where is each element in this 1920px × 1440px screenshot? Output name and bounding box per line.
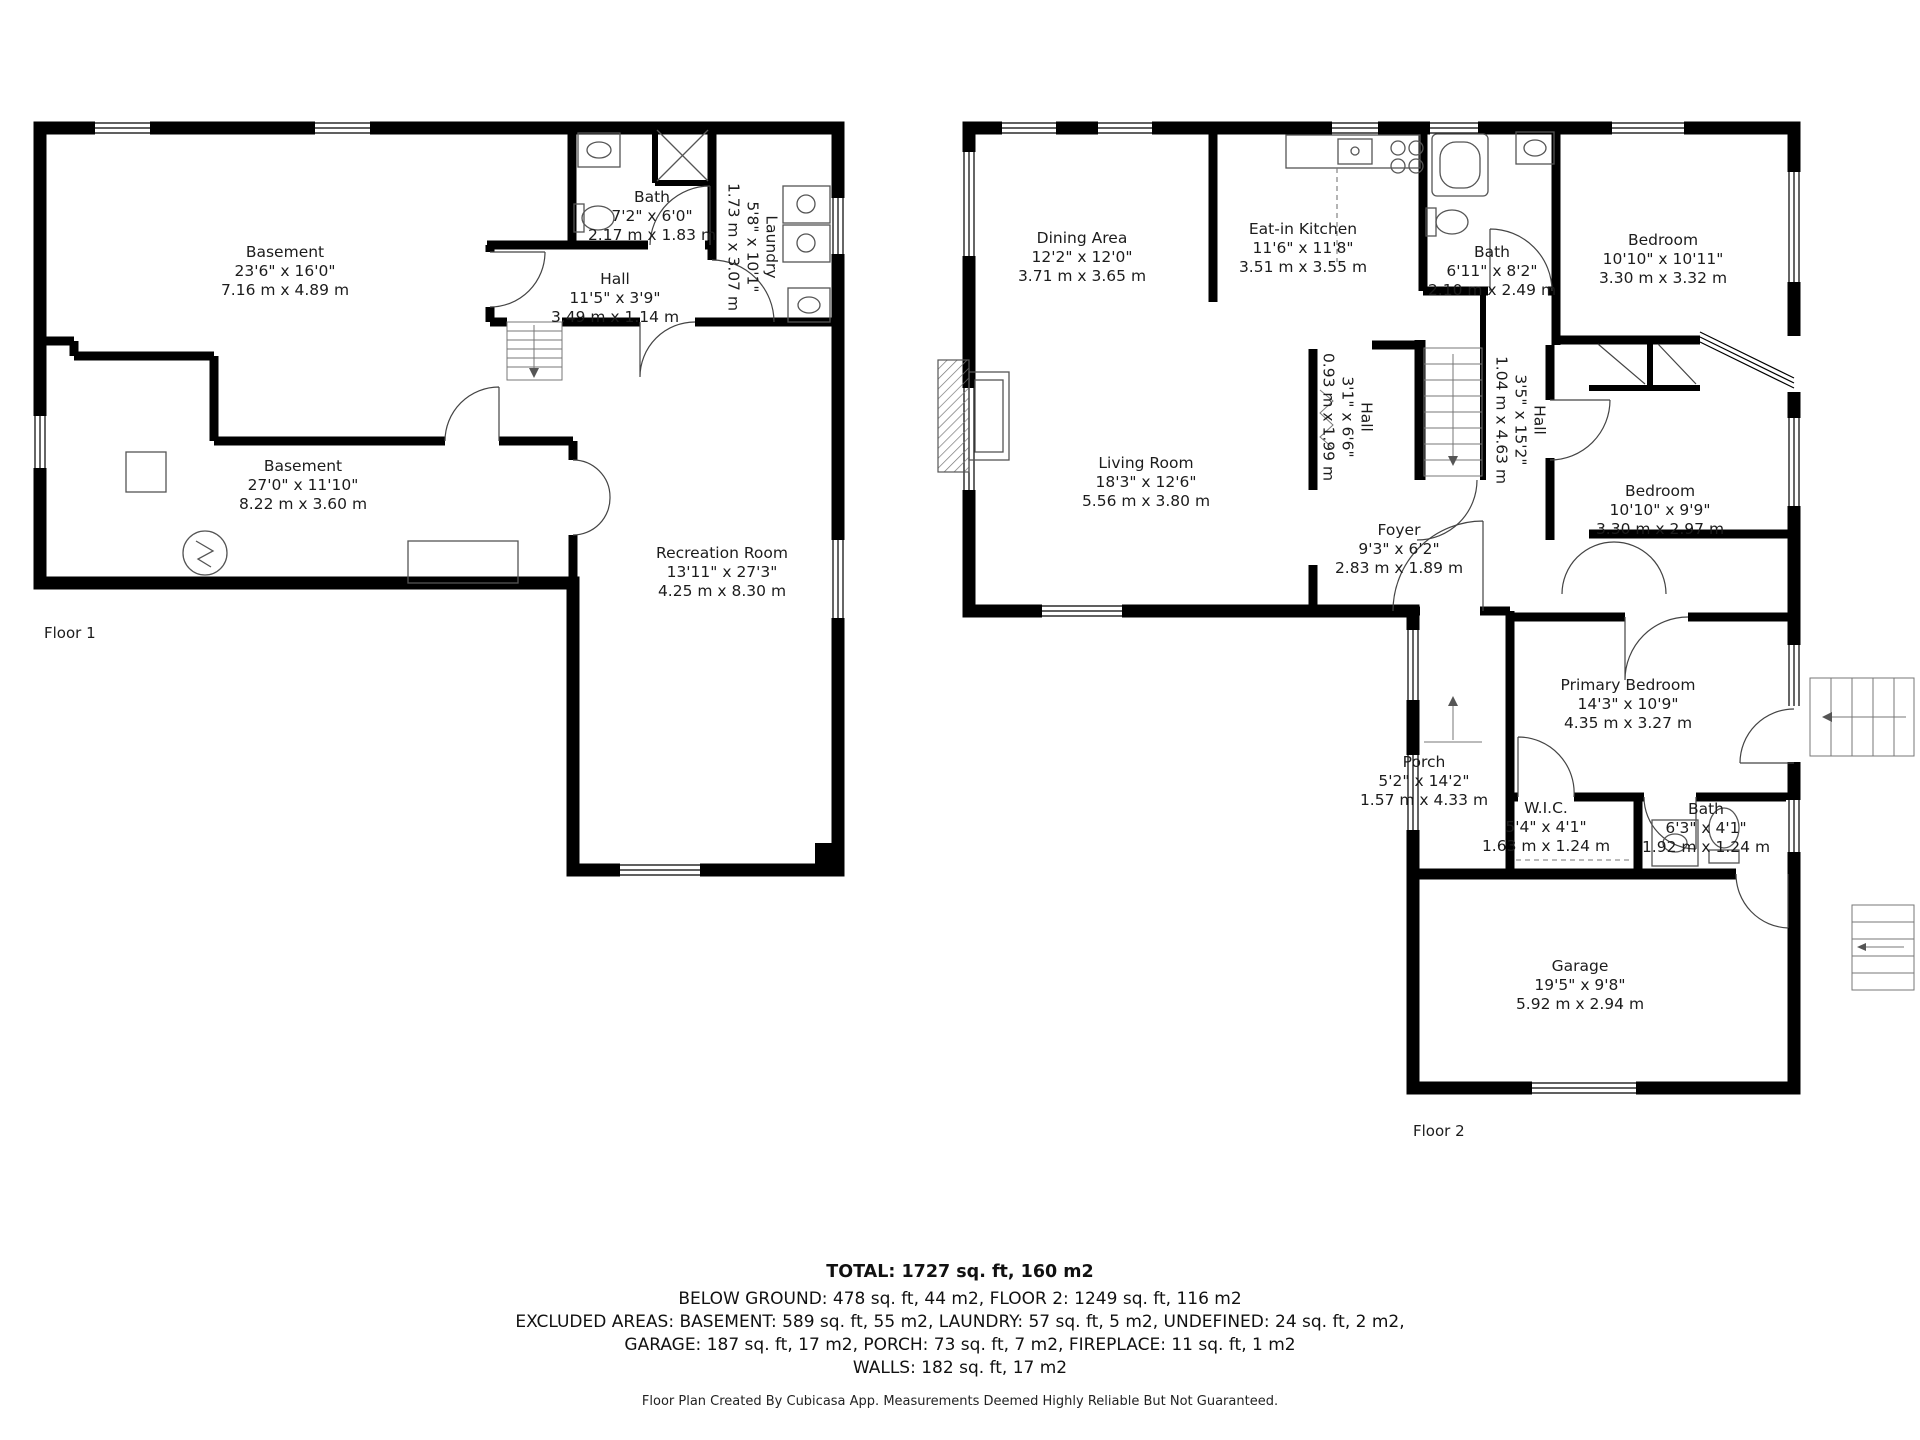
room-label-foyer: Foyer 9'3" x 6'2" 2.83 m x 1.89 m	[1335, 521, 1463, 578]
room-name: Recreation Room	[656, 544, 788, 563]
porch-steps	[1424, 696, 1482, 742]
room-dims-imperial: 5'2" x 14'2"	[1360, 772, 1488, 791]
room-dims-imperial: 3'1" x 6'6"	[1338, 353, 1357, 481]
summary-walls: WALLS: 182 sq. ft, 17 m2	[0, 1357, 1920, 1380]
room-label-living-room: Living Room 18'3" x 12'6" 5.56 m x 3.80 …	[1082, 454, 1210, 511]
floor1-exterior-walls	[40, 128, 838, 870]
room-label-bedroom-1: Bedroom 10'10" x 10'11" 3.30 m x 3.32 m	[1599, 231, 1727, 288]
room-name: Hall	[551, 270, 679, 289]
room-label-eat-in-kitchen: Eat-in Kitchen 11'6" x 11'8" 3.51 m x 3.…	[1239, 220, 1367, 277]
room-dims-metric: 3.30 m x 2.97 m	[1596, 520, 1724, 539]
room-label-bedroom-2: Bedroom 10'10" x 9'9" 3.30 m x 2.97 m	[1596, 482, 1724, 539]
room-dims-metric: 8.22 m x 3.60 m	[239, 495, 367, 514]
room-dims-imperial: 12'2" x 12'0"	[1018, 248, 1146, 267]
room-dims-metric: 5.56 m x 3.80 m	[1082, 492, 1210, 511]
room-label-laundry: Laundry 5'8" x 10'1" 1.73 m x 3.07 m	[724, 183, 781, 311]
room-label-basement-upper: Basement 23'6" x 16'0" 7.16 m x 4.89 m	[221, 243, 349, 300]
summary-total: TOTAL: 1727 sq. ft, 160 m2	[0, 1261, 1920, 1284]
room-label-wic: W.I.C. 5'4" x 4'1" 1.63 m x 1.24 m	[1482, 799, 1610, 856]
room-dims-imperial: 14'3" x 10'9"	[1561, 695, 1696, 714]
room-label-hall-small: Hall 3'1" x 6'6" 0.93 m x 1.99 m	[1319, 353, 1376, 481]
exterior-stairs-upper	[1810, 678, 1914, 756]
room-name: Bedroom	[1599, 231, 1727, 250]
room-name: Living Room	[1082, 454, 1210, 473]
room-dims-imperial: 18'3" x 12'6"	[1082, 473, 1210, 492]
room-dims-metric: 1.92 m x 1.24 m	[1642, 838, 1770, 857]
room-dims-imperial: 9'3" x 6'2"	[1335, 540, 1463, 559]
room-name: Hall	[1357, 353, 1376, 481]
summary-excluded-areas: EXCLUDED AREAS: BASEMENT: 589 sq. ft, 55…	[0, 1311, 1920, 1334]
room-dims-imperial: 3'5" x 15'2"	[1511, 356, 1530, 484]
room-name: Basement	[239, 457, 367, 476]
room-dims-imperial: 19'5" x 9'8"	[1516, 976, 1644, 995]
room-dims-metric: 2.17 m x 1.83 m	[588, 226, 716, 245]
room-label-bath-floor2: Bath 6'11" x 8'2" 2.10 m x 2.49 m	[1428, 243, 1556, 300]
room-dims-metric: 1.63 m x 1.24 m	[1482, 837, 1610, 856]
room-name: Garage	[1516, 957, 1644, 976]
footer-disclaimer: Floor Plan Created By Cubicasa App. Meas…	[0, 1394, 1920, 1409]
room-label-hall-floor1: Hall 11'5" x 3'9" 3.49 m x 1.14 m	[551, 270, 679, 327]
room-dims-imperial: 11'5" x 3'9"	[551, 289, 679, 308]
room-label-dining-area: Dining Area 12'2" x 12'0" 3.71 m x 3.65 …	[1018, 229, 1146, 286]
room-dims-metric: 1.73 m x 3.07 m	[724, 183, 743, 311]
room-label-hall-long: Hall 3'5" x 15'2" 1.04 m x 4.63 m	[1492, 356, 1549, 484]
summary-garage-porch-fireplace: GARAGE: 187 sq. ft, 17 m2, PORCH: 73 sq.…	[0, 1334, 1920, 1357]
room-label-porch: Porch 5'2" x 14'2" 1.57 m x 4.33 m	[1360, 753, 1488, 810]
room-dims-imperial: 23'6" x 16'0"	[221, 262, 349, 281]
room-label-primary-bedroom: Primary Bedroom 14'3" x 10'9" 4.35 m x 3…	[1561, 676, 1696, 733]
room-dims-imperial: 13'11" x 27'3"	[656, 563, 788, 582]
room-name: Bath	[1428, 243, 1556, 262]
room-dims-imperial: 7'2" x 6'0"	[588, 207, 716, 226]
summary-below-ground: BELOW GROUND: 478 sq. ft, 44 m2, FLOOR 2…	[0, 1288, 1920, 1311]
room-name: Bath	[588, 188, 716, 207]
room-dims-metric: 1.04 m x 4.63 m	[1492, 356, 1511, 484]
room-name: Laundry	[762, 183, 781, 311]
room-name: Foyer	[1335, 521, 1463, 540]
floor2-stairs	[1424, 348, 1482, 476]
room-name: Eat-in Kitchen	[1239, 220, 1367, 239]
room-dims-metric: 2.83 m x 1.89 m	[1335, 559, 1463, 578]
room-dims-imperial: 10'10" x 9'9"	[1596, 501, 1724, 520]
room-label-garage: Garage 19'5" x 9'8" 5.92 m x 2.94 m	[1516, 957, 1644, 1014]
room-dims-imperial: 5'8" x 10'1"	[743, 183, 762, 311]
room-dims-imperial: 27'0" x 11'10"	[239, 476, 367, 495]
room-dims-metric: 5.92 m x 2.94 m	[1516, 995, 1644, 1014]
room-name: Primary Bedroom	[1561, 676, 1696, 695]
room-dims-metric: 3.49 m x 1.14 m	[551, 308, 679, 327]
room-label-bath-2: Bath 6'3" x 4'1" 1.92 m x 1.24 m	[1642, 800, 1770, 857]
floor2-tag: Floor 2	[1413, 1122, 1465, 1140]
room-dims-metric: 0.93 m x 1.99 m	[1319, 353, 1338, 481]
floor-plan-page: Basement 23'6" x 16'0" 7.16 m x 4.89 m B…	[0, 0, 1920, 1440]
room-dims-metric: 4.25 m x 8.30 m	[656, 582, 788, 601]
room-name: Hall	[1530, 356, 1549, 484]
room-dims-metric: 3.30 m x 3.32 m	[1599, 269, 1727, 288]
room-dims-imperial: 11'6" x 11'8"	[1239, 239, 1367, 258]
room-name: Bath	[1642, 800, 1770, 819]
room-name: W.I.C.	[1482, 799, 1610, 818]
exterior-stairs-lower	[1852, 905, 1914, 990]
room-label-bath-floor1: Bath 7'2" x 6'0" 2.17 m x 1.83 m	[588, 188, 716, 245]
room-dims-metric: 2.10 m x 2.49 m	[1428, 281, 1556, 300]
floor1-interior-walls	[40, 128, 838, 583]
room-dims-metric: 3.71 m x 3.65 m	[1018, 267, 1146, 286]
floor1-tag: Floor 1	[44, 624, 96, 642]
room-name: Porch	[1360, 753, 1488, 772]
room-name: Bedroom	[1596, 482, 1724, 501]
room-dims-imperial: 5'4" x 4'1"	[1482, 818, 1610, 837]
room-dims-imperial: 6'3" x 4'1"	[1642, 819, 1770, 838]
floor2-bay-window	[1700, 329, 1804, 392]
room-label-recreation-room: Recreation Room 13'11" x 27'3" 4.25 m x …	[656, 544, 788, 601]
room-name: Dining Area	[1018, 229, 1146, 248]
room-name: Basement	[221, 243, 349, 262]
room-dims-imperial: 10'10" x 10'11"	[1599, 250, 1727, 269]
room-dims-imperial: 6'11" x 8'2"	[1428, 262, 1556, 281]
room-label-basement-lower: Basement 27'0" x 11'10" 8.22 m x 3.60 m	[239, 457, 367, 514]
room-dims-metric: 4.35 m x 3.27 m	[1561, 714, 1696, 733]
room-dims-metric: 7.16 m x 4.89 m	[221, 281, 349, 300]
room-dims-metric: 1.57 m x 4.33 m	[1360, 791, 1488, 810]
floor1-stairs	[507, 322, 562, 380]
bath-fixtures-floor2	[1426, 132, 1554, 236]
room-dims-metric: 3.51 m x 3.55 m	[1239, 258, 1367, 277]
